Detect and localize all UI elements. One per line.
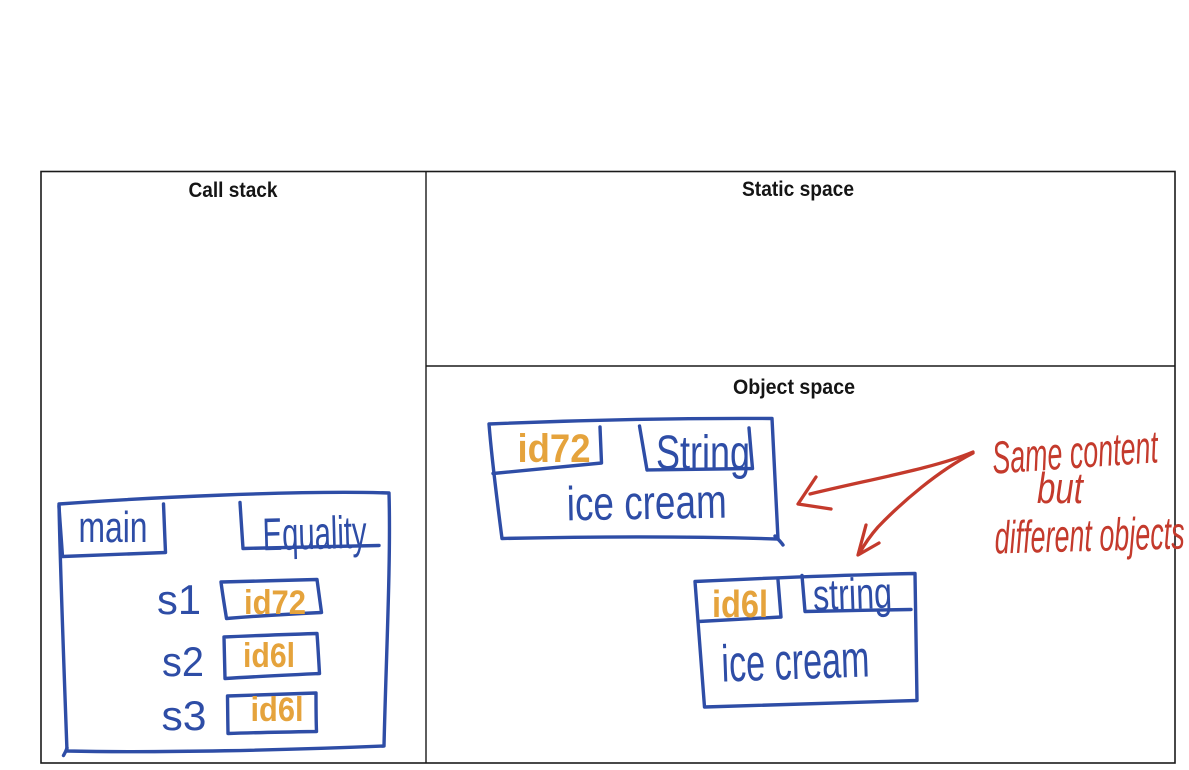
svg-text:string: string [812,569,893,621]
svg-text:ice cream: ice cream [566,476,727,532]
svg-text:id6l: id6l [251,691,304,729]
svg-text:id72: id72 [244,584,306,622]
svg-text:but: but [1037,464,1084,513]
svg-text:Object space: Object space [733,376,855,399]
svg-text:s2: s2 [162,638,204,685]
svg-text:main: main [79,503,148,552]
svg-text:ice cream: ice cream [720,630,870,693]
svg-text:id6l: id6l [712,584,768,626]
svg-text:id72: id72 [518,427,591,471]
svg-text:Static space: Static space [742,178,854,201]
svg-text:s1: s1 [157,576,201,623]
svg-text:String: String [656,427,750,480]
svg-text:id6l: id6l [243,637,295,675]
svg-text:s3: s3 [162,692,207,739]
svg-text:Equality: Equality [262,506,367,561]
svg-text:different objects: different objects [994,507,1185,564]
svg-text:Call stack: Call stack [189,179,278,202]
